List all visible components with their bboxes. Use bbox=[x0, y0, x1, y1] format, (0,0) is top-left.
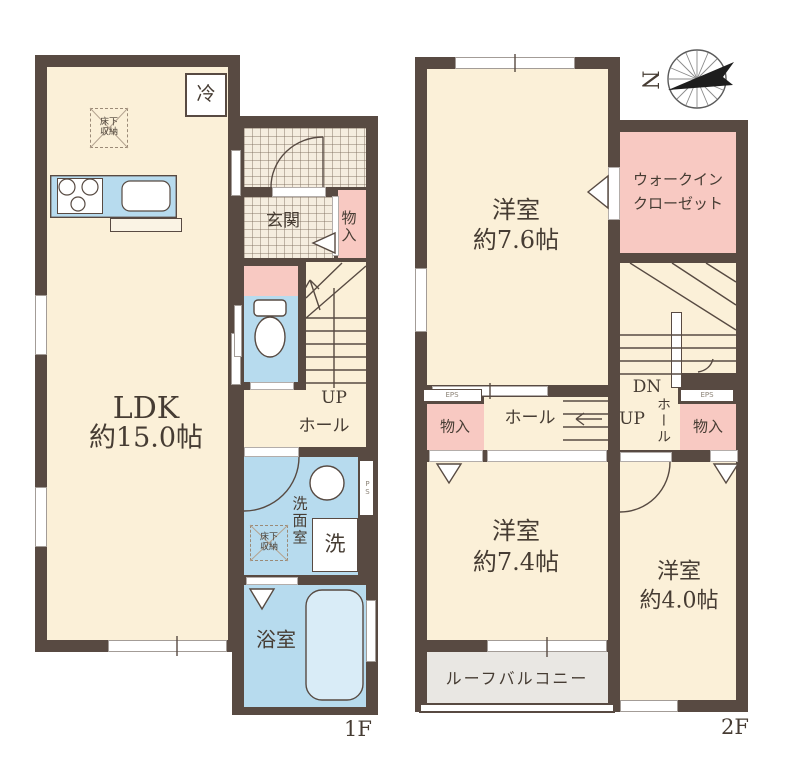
f2-window-left bbox=[415, 268, 427, 332]
f1-toilet-counter bbox=[244, 266, 298, 296]
f2-wic-door bbox=[608, 167, 620, 220]
f1-ldk-size-label: 約15.0帖 bbox=[89, 422, 203, 453]
f2-dn-label: DN bbox=[633, 378, 662, 398]
f1-ldk-room bbox=[47, 67, 228, 640]
f1-entrance-label: 玄関 bbox=[266, 212, 300, 232]
f2-window-bottom-c bbox=[620, 700, 678, 712]
f1-window-mid-1 bbox=[231, 150, 241, 196]
f2-floor-label: 2F bbox=[721, 715, 749, 739]
f2-wic-label-line2: クローゼット bbox=[633, 195, 723, 212]
f1-washroom-door-leaf bbox=[244, 447, 299, 457]
f1-bath-window bbox=[366, 600, 376, 662]
f1-toilet-door bbox=[250, 382, 294, 390]
f1-entrance-threshold bbox=[272, 187, 326, 197]
f1-toilet-window bbox=[234, 305, 242, 357]
f2-closet-left-label: 物入 bbox=[440, 418, 470, 435]
compass-needle bbox=[668, 62, 734, 90]
f2-room-c-door bbox=[620, 452, 672, 462]
f2-north-label: N bbox=[636, 70, 661, 89]
f2-closet-right-door bbox=[710, 450, 738, 462]
f2-balcony-label: ルーフバルコニー bbox=[446, 670, 589, 688]
f1-hall-label: ホール bbox=[299, 417, 350, 437]
f1-closet-label: 物入 bbox=[341, 210, 356, 244]
f2-hall-label: ホール bbox=[505, 409, 556, 429]
floor-plan-canvas: LDK 約15.0帖 冷 床下収納 玄関 物入 UP ホール 洗面室 洗 床下収… bbox=[0, 0, 800, 781]
f2-room-c-size-label: 約4.0帖 bbox=[640, 588, 719, 613]
f1-closet-door bbox=[332, 196, 339, 256]
f2-room-a-label: 洋室 bbox=[492, 197, 540, 225]
f1-stove bbox=[57, 178, 103, 214]
f1-kitchen-shelf bbox=[110, 218, 182, 232]
f2-walk-in-closet bbox=[620, 132, 736, 253]
f1-window-left-1 bbox=[35, 295, 47, 355]
f1-ldk-label: LDK bbox=[113, 392, 179, 427]
f1-window-left-2 bbox=[35, 487, 47, 547]
f1-bath-door-leaf bbox=[246, 577, 298, 585]
f2-hall-vertical-label: ホール bbox=[656, 397, 670, 445]
f2-room-b-label: 洋室 bbox=[492, 518, 540, 546]
f1-toilet-room bbox=[244, 296, 298, 382]
f2-closet-left-door bbox=[429, 450, 483, 462]
f1-underfloor2-label: 床下収納 bbox=[257, 533, 281, 554]
f1-fridge-label: 冷 bbox=[196, 84, 215, 106]
f1-washroom-label: 洗面室 bbox=[292, 496, 307, 547]
f1-porch bbox=[244, 128, 366, 187]
f2-stair-handrail bbox=[671, 312, 682, 388]
f1-stairs-area bbox=[306, 262, 366, 390]
f1-ps-label: PS bbox=[364, 480, 371, 496]
f1-window-bottom bbox=[108, 640, 227, 652]
f1-up-label: UP bbox=[321, 389, 347, 409]
f2-eps-left-label: EPS bbox=[445, 391, 458, 399]
f2-room-c-label: 洋室 bbox=[657, 559, 701, 584]
f2-eps-right-label: EPS bbox=[700, 391, 713, 399]
f2-wic-label-line1: ウォークイン bbox=[633, 171, 723, 188]
f2-window-bottom-b bbox=[487, 640, 607, 652]
f2-room-b-size-label: 約7.4帖 bbox=[473, 549, 559, 577]
f2-room-a-size-label: 約7.6帖 bbox=[473, 227, 559, 255]
f1-bath-label: 浴室 bbox=[256, 629, 296, 652]
f1-laundry-label: 洗 bbox=[325, 532, 346, 556]
compass-icon bbox=[668, 50, 734, 108]
f1-underfloor-label: 床下収納 bbox=[97, 118, 121, 139]
f2-room-b-door bbox=[487, 450, 607, 462]
f2-closet-right-label: 物入 bbox=[693, 418, 723, 435]
f1-floor-label: 1F bbox=[344, 717, 372, 741]
f2-window-top bbox=[455, 57, 575, 69]
f2-balcony-railing bbox=[419, 703, 615, 713]
f2-up-label: UP bbox=[619, 410, 645, 430]
